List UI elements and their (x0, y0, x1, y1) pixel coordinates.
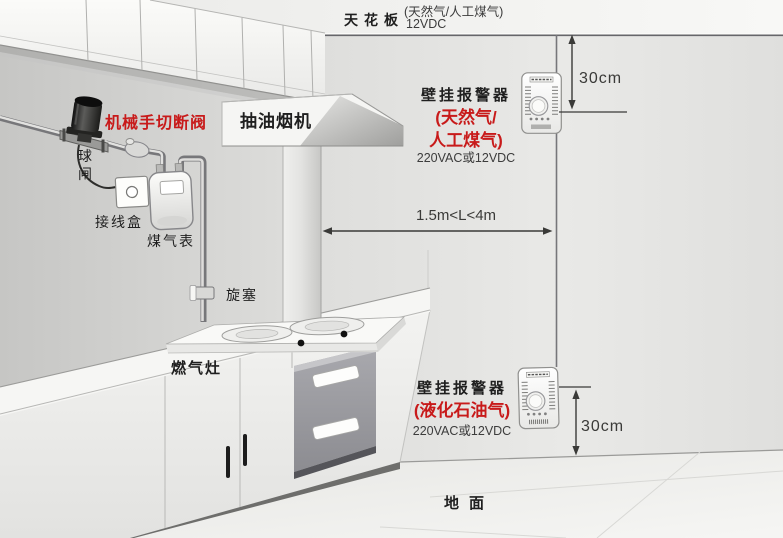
plug-valve-label: 旋塞 (226, 285, 258, 305)
kitchen-gas-alarm-installation-diagram: 天花板 (天然气/人工煤气) 12VDC 30cm 壁挂报警器 (天然气/ 人工… (0, 0, 783, 538)
wall-alarm-bottom-device (518, 367, 559, 429)
wall-alarm-top-device (522, 73, 562, 134)
floor-label: 地面 (444, 492, 494, 513)
plug-valve-device (190, 286, 214, 301)
gas-meter-label: 煤气表 (147, 231, 195, 251)
shutoff-valve-label: 机械手切断阀 (105, 109, 207, 133)
gas-stove-label: 燃气灶 (171, 357, 222, 378)
top-alarm-title: 壁挂报警器 (415, 84, 517, 105)
gas-meter-device (148, 163, 193, 230)
bottom-alarm-title: 壁挂报警器 (410, 377, 514, 398)
bottom-alarm-floor-distance: 30cm (581, 418, 624, 436)
hood-duct (283, 146, 321, 322)
ceiling-voltage: 12VDC (406, 17, 446, 31)
ball-valve-label: 球闸 (77, 148, 93, 184)
ceiling-label: 天花板 (344, 10, 404, 30)
top-alarm-fuel-line1: (天然气/ (415, 103, 517, 128)
bottom-alarm-fuel: (液化石油气) (402, 396, 522, 421)
junction-box-label: 接线盒 (95, 212, 143, 232)
top-alarm-ceiling-distance: 30cm (579, 70, 622, 88)
bottom-alarm-power: 220VAC或12VDC (408, 420, 516, 439)
kitchen-illustration (0, 0, 783, 538)
hood-to-alarm-distance: 1.5m<L<4m (416, 207, 496, 224)
range-hood-label: 抽油烟机 (240, 107, 312, 132)
cabinet-door-handle (226, 446, 230, 478)
cabinet-door-handle (243, 434, 247, 466)
top-alarm-power: 220VAC或12VDC (412, 147, 520, 166)
